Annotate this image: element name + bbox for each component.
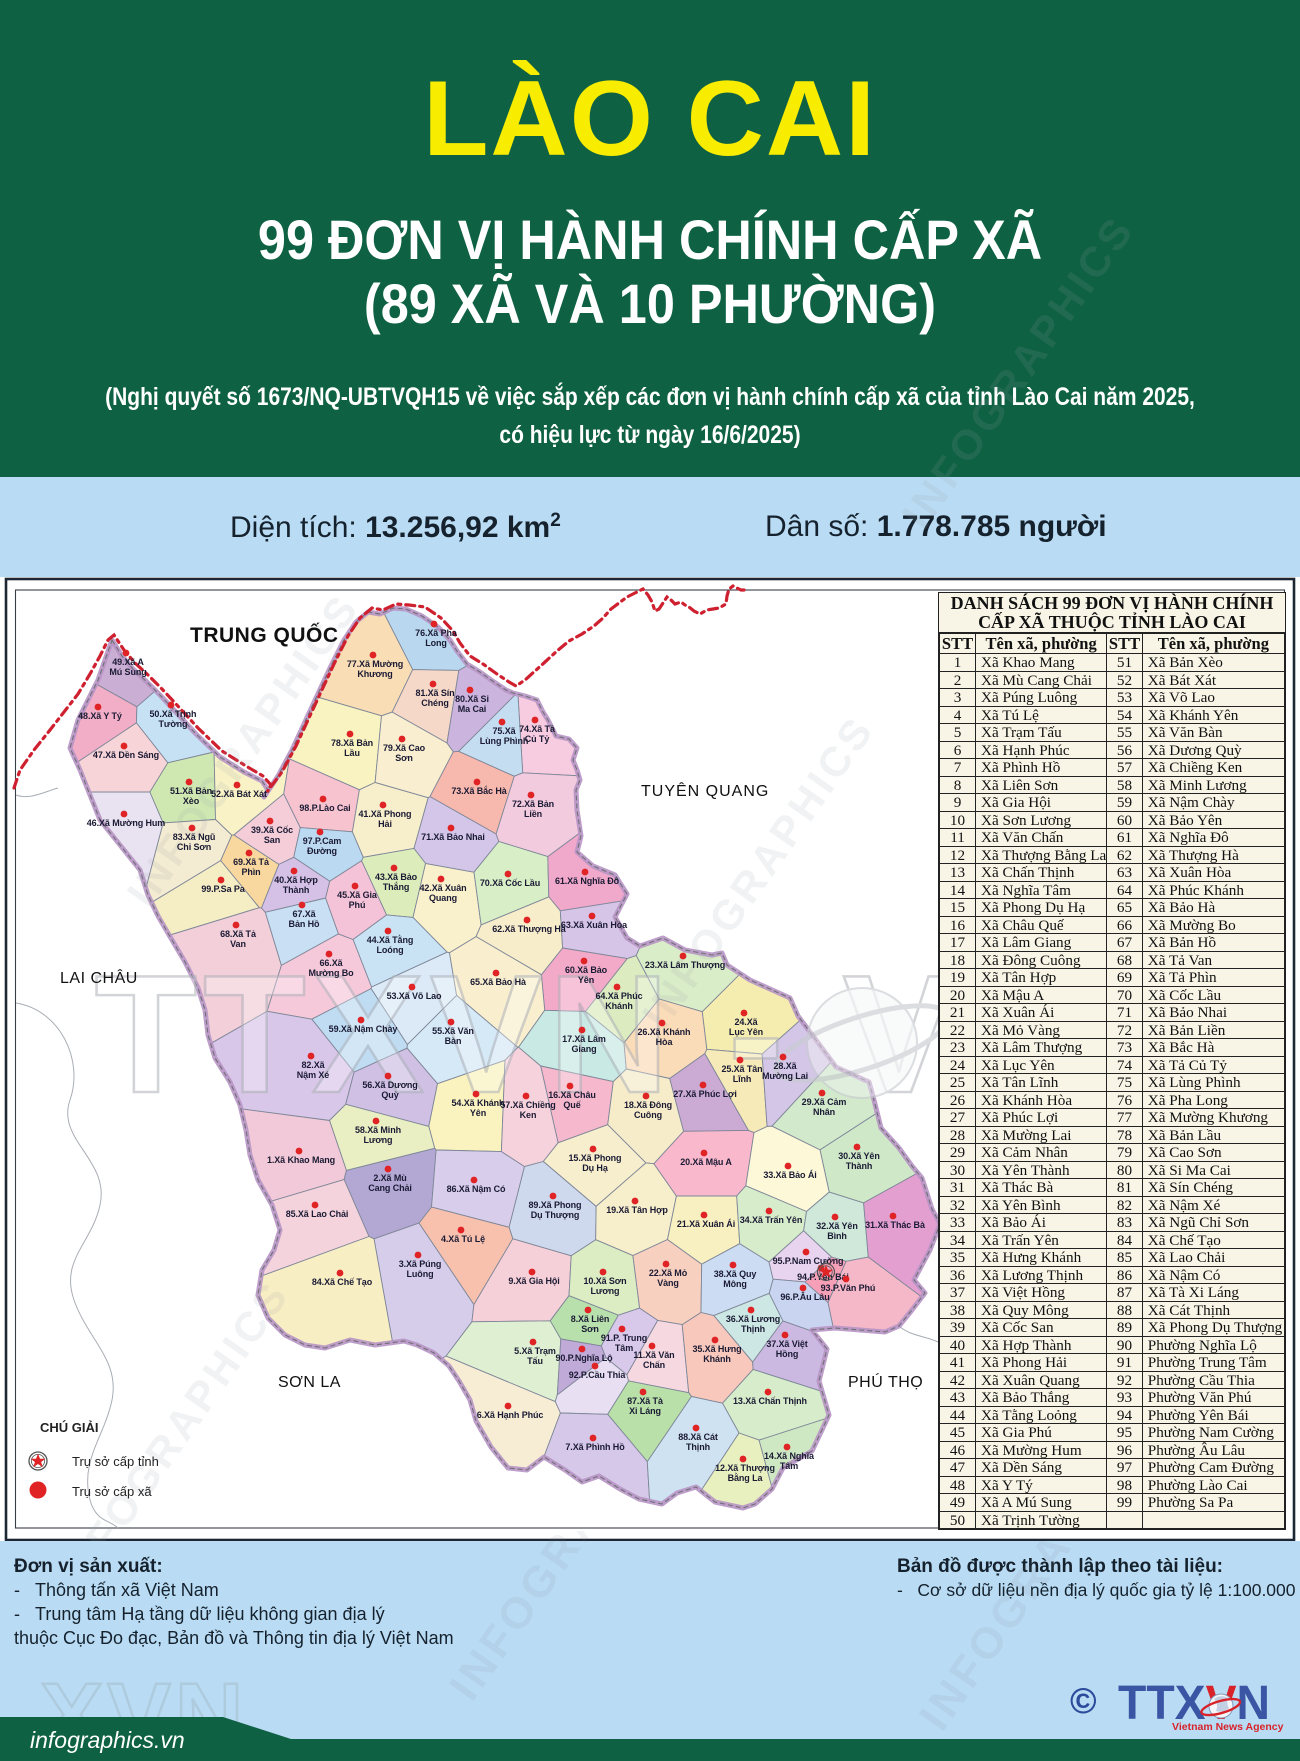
svg-text:88.Xã Cát: 88.Xã Cát <box>678 1432 718 1442</box>
svg-text:38.Xã Quy: 38.Xã Quy <box>714 1269 757 1279</box>
svg-text:Lĩnh: Lĩnh <box>733 1074 752 1084</box>
svg-text:73.Xã Bắc Hà: 73.Xã Bắc Hà <box>451 785 507 796</box>
svg-text:83.Xã Ngũ: 83.Xã Ngũ <box>173 832 216 842</box>
svg-text:Yên: Yên <box>470 1108 486 1118</box>
svg-text:24.Xã: 24.Xã <box>734 1017 758 1027</box>
svg-text:16.Xã Châu: 16.Xã Châu <box>548 1090 596 1100</box>
svg-text:Tấu: Tấu <box>527 1356 543 1366</box>
svg-text:TUYÊN QUANG: TUYÊN QUANG <box>641 781 769 800</box>
svg-text:26.Xã Khánh: 26.Xã Khánh <box>638 1027 691 1037</box>
svg-text:8.Xã Liên: 8.Xã Liên <box>571 1314 610 1324</box>
svg-text:Hồng: Hồng <box>776 1349 799 1359</box>
svg-text:Đường: Đường <box>307 846 337 856</box>
svg-text:San: San <box>264 835 280 845</box>
svg-text:TRUNG QUỐC: TRUNG QUỐC <box>190 623 339 647</box>
svg-text:50.Xã Trịnh: 50.Xã Trịnh <box>150 709 197 719</box>
svg-text:35.Xã Hưng: 35.Xã Hưng <box>692 1344 741 1354</box>
svg-text:INFOGRAPHICS: INFOGRAPHICS <box>893 207 1144 537</box>
svg-text:Xi Láng: Xi Láng <box>629 1406 661 1416</box>
svg-text:41.Xã Phong: 41.Xã Phong <box>359 809 412 819</box>
svg-text:Hòa: Hòa <box>656 1037 674 1047</box>
svg-text:65.Xã Bảo Hà: 65.Xã Bảo Hà <box>470 977 527 987</box>
svg-text:Lùng Phình: Lùng Phình <box>480 736 529 746</box>
svg-text:Tâm: Tâm <box>780 1461 798 1471</box>
svg-text:Dụ Hạ: Dụ Hạ <box>582 1163 609 1173</box>
svg-text:Khương: Khương <box>357 669 392 679</box>
svg-text:Tường: Tường <box>159 719 188 729</box>
svg-text:Nhân: Nhân <box>813 1107 835 1117</box>
svg-text:90.P.Nghĩa Lộ: 90.P.Nghĩa Lộ <box>555 1353 613 1363</box>
svg-text:Vietnam News Agency: Vietnam News Agency <box>1172 1721 1284 1733</box>
svg-text:Sơn: Sơn <box>581 1324 599 1334</box>
svg-text:Củ Tỷ: Củ Tỷ <box>525 734 550 744</box>
svg-text:63.Xã Xuân Hòa: 63.Xã Xuân Hòa <box>561 920 628 930</box>
svg-text:Liền: Liền <box>524 809 542 819</box>
svg-text:Phìn: Phìn <box>241 867 260 877</box>
svg-text:Ken: Ken <box>520 1110 537 1120</box>
svg-text:68.Xã Tả: 68.Xã Tả <box>220 929 257 939</box>
svg-text:43.Xã Bảo: 43.Xã Bảo <box>375 872 418 882</box>
svg-text:Xèo: Xèo <box>183 796 200 806</box>
svg-text:80.Xã Si: 80.Xã Si <box>455 694 489 704</box>
svg-text:57.Xã Chiềng: 57.Xã Chiềng <box>500 1100 555 1110</box>
svg-text:79.Xã Cao: 79.Xã Cao <box>383 743 426 753</box>
svg-text:18.Xã Đông: 18.Xã Đông <box>624 1100 672 1110</box>
svg-text:Thành: Thành <box>846 1161 873 1171</box>
svg-text:Loóng: Loóng <box>377 945 404 955</box>
svg-text:96.P.Âu Lâu: 96.P.Âu Lâu <box>780 1291 829 1302</box>
svg-text:37.Xã Việt: 37.Xã Việt <box>766 1339 807 1349</box>
svg-text:©: © <box>1070 1680 1097 1721</box>
svg-text:67.Xã: 67.Xã <box>292 909 316 919</box>
svg-text:54.Xã Khánh: 54.Xã Khánh <box>452 1098 505 1108</box>
svg-text:33.Xã Bảo Ái: 33.Xã Bảo Ái <box>763 1170 816 1180</box>
svg-text:39.Xã Cốc: 39.Xã Cốc <box>251 825 293 835</box>
svg-text:56.Xã Dương: 56.Xã Dương <box>362 1080 417 1090</box>
svg-text:42.Xã Xuân: 42.Xã Xuân <box>419 883 466 893</box>
svg-text:SƠN LA: SƠN LA <box>278 1374 341 1391</box>
svg-text:44.Xã Tằng: 44.Xã Tằng <box>367 934 414 945</box>
svg-text:Nậm Xé: Nậm Xé <box>297 1070 330 1080</box>
svg-text:17.Xã Lâm: 17.Xã Lâm <box>562 1034 606 1044</box>
svg-text:Bàn: Bàn <box>445 1036 462 1046</box>
svg-text:Quế: Quế <box>563 1100 581 1110</box>
svg-text:PHÚ THỌ: PHÚ THỌ <box>848 1372 923 1391</box>
svg-text:7.Xã Phình Hồ: 7.Xã Phình Hồ <box>565 1442 625 1452</box>
svg-text:49.Xã A: 49.Xã A <box>112 657 144 667</box>
svg-text:21.Xã Xuân Ái: 21.Xã Xuân Ái <box>677 1219 735 1229</box>
svg-text:Lầu: Lầu <box>344 748 360 758</box>
svg-text:98.P.Lào Cai: 98.P.Lào Cai <box>299 803 350 813</box>
svg-text:Vàng: Vàng <box>657 1278 679 1288</box>
svg-text:74.Xã Tả: 74.Xã Tả <box>519 724 556 734</box>
svg-text:46.Xã Mường Hum: 46.Xã Mường Hum <box>87 818 166 828</box>
svg-text:61.Xã Nghĩa Đô: 61.Xã Nghĩa Đô <box>555 876 620 886</box>
svg-text:85.Xã Lao Chải: 85.Xã Lao Chải <box>286 1209 349 1219</box>
svg-text:59.Xã Nậm Chày: 59.Xã Nậm Chày <box>329 1024 398 1034</box>
svg-text:36.Xã Lương: 36.Xã Lương <box>726 1314 780 1324</box>
svg-text:91.P. Trung: 91.P. Trung <box>601 1333 647 1343</box>
svg-text:5.Xã Trạm: 5.Xã Trạm <box>514 1346 556 1356</box>
svg-text:Tâm: Tâm <box>615 1343 633 1353</box>
svg-text:30.Xã Yên: 30.Xã Yên <box>838 1151 879 1161</box>
svg-text:77.Xã Mường: 77.Xã Mường <box>347 659 403 669</box>
svg-text:LAI CHÂU: LAI CHÂU <box>60 968 138 987</box>
svg-text:Cang Chải: Cang Chải <box>368 1183 412 1193</box>
svg-text:32.Xã Yên: 32.Xã Yên <box>816 1221 857 1231</box>
svg-text:45.Xã Gia: 45.Xã Gia <box>337 890 378 900</box>
svg-text:Chấn: Chấn <box>643 1360 665 1370</box>
svg-text:55.Xã Văn: 55.Xã Văn <box>432 1026 474 1036</box>
svg-text:Lương: Lương <box>364 1135 393 1145</box>
svg-text:Bản Hồ: Bản Hồ <box>289 919 321 929</box>
svg-text:Long: Long <box>425 638 447 648</box>
svg-text:66.Xã: 66.Xã <box>319 958 343 968</box>
svg-text:64.Xã Phúc: 64.Xã Phúc <box>595 991 642 1001</box>
svg-text:Thịnh: Thịnh <box>686 1442 710 1452</box>
svg-text:Chéng: Chéng <box>421 698 449 708</box>
svg-text:95.P.Nam Cường: 95.P.Nam Cường <box>773 1256 844 1266</box>
svg-text:48.Xã Y Tý: 48.Xã Y Tý <box>78 711 122 721</box>
svg-text:1.Xã Khao Mang: 1.Xã Khao Mang <box>267 1155 335 1165</box>
svg-text:Trụ sở cấp tỉnh: Trụ sở cấp tỉnh <box>72 1454 159 1469</box>
svg-text:89.Xã Phong: 89.Xã Phong <box>529 1200 582 1210</box>
svg-text:Mường Lai: Mường Lai <box>762 1071 808 1081</box>
svg-text:71.Xã Bảo Nhai: 71.Xã Bảo Nhai <box>421 832 485 842</box>
svg-text:Hải: Hải <box>378 819 392 829</box>
svg-text:Bằng La: Bằng La <box>728 1472 764 1483</box>
svg-text:6.Xã Hạnh Phúc: 6.Xã Hạnh Phúc <box>477 1410 544 1420</box>
svg-text:Thịnh: Thịnh <box>741 1324 765 1334</box>
svg-text:Khánh: Khánh <box>703 1354 731 1364</box>
svg-text:Lục Yên: Lục Yên <box>729 1027 763 1037</box>
svg-text:12.Xã Thượng: 12.Xã Thượng <box>715 1463 775 1473</box>
svg-text:84.Xã Chế Tạo: 84.Xã Chế Tạo <box>312 1277 373 1287</box>
svg-text:53.Xã Võ Lao: 53.Xã Võ Lao <box>387 991 442 1001</box>
svg-text:Mú Sung: Mú Sung <box>109 667 146 677</box>
svg-text:Bình: Bình <box>827 1231 847 1241</box>
svg-text:9.Xã Gia Hội: 9.Xã Gia Hội <box>508 1276 559 1286</box>
svg-text:25.Xã Tân: 25.Xã Tân <box>721 1064 762 1074</box>
svg-text:Khánh: Khánh <box>605 1001 633 1011</box>
svg-text:CHÚ GIẢI: CHÚ GIẢI <box>40 1420 99 1435</box>
svg-text:Quang: Quang <box>429 893 457 903</box>
svg-text:51.Xã Bản: 51.Xã Bản <box>170 786 212 796</box>
svg-text:58.Xã Minh: 58.Xã Minh <box>355 1125 401 1135</box>
svg-text:Lương: Lương <box>591 1286 620 1296</box>
svg-text:20.Xã Mậu A: 20.Xã Mậu A <box>680 1157 732 1167</box>
svg-text:40.Xã Hợp: 40.Xã Hợp <box>274 875 318 885</box>
svg-text:4.Xã Tú Lệ: 4.Xã Tú Lệ <box>441 1234 485 1244</box>
svg-text:13.Xã Chấn Thịnh: 13.Xã Chấn Thịnh <box>733 1396 807 1406</box>
svg-text:15.Xã Phong: 15.Xã Phong <box>569 1153 622 1163</box>
svg-text:78.Xã Bản: 78.Xã Bản <box>331 738 373 748</box>
svg-text:Dụ Thượng: Dụ Thượng <box>531 1210 580 1220</box>
svg-text:92.P.Cầu Thia: 92.P.Cầu Thia <box>569 1370 627 1380</box>
svg-text:81.Xã Sín: 81.Xã Sín <box>415 688 454 698</box>
svg-text:Trụ sở cấp xã: Trụ sở cấp xã <box>72 1484 152 1499</box>
svg-text:34.Xã Trấn Yên: 34.Xã Trấn Yên <box>740 1215 802 1225</box>
svg-text:2.Xã Mù: 2.Xã Mù <box>373 1173 406 1183</box>
svg-text:Sơn: Sơn <box>395 753 413 763</box>
svg-text:11.Xã Văn: 11.Xã Văn <box>633 1350 674 1360</box>
svg-text:87.Xã Tà: 87.Xã Tà <box>627 1396 664 1406</box>
svg-text:47.Xã Dền Sáng: 47.Xã Dền Sáng <box>93 750 159 760</box>
svg-text:Van: Van <box>230 939 246 949</box>
svg-text:22.Xã Mỏ: 22.Xã Mỏ <box>649 1268 688 1278</box>
svg-text:27.Xã Phúc Lợi: 27.Xã Phúc Lợi <box>673 1089 737 1099</box>
svg-text:23.Xã Lâm Thượng: 23.Xã Lâm Thượng <box>645 960 725 970</box>
svg-text:86.Xã Nậm Có: 86.Xã Nậm Có <box>447 1184 506 1194</box>
svg-text:Mông: Mông <box>723 1279 747 1289</box>
svg-text:99.P.Sa Pa: 99.P.Sa Pa <box>201 884 245 894</box>
svg-text:Cuông: Cuông <box>634 1110 662 1120</box>
svg-text:Luông: Luông <box>407 1269 434 1279</box>
svg-text:14.Xã Nghĩa: 14.Xã Nghĩa <box>764 1451 815 1461</box>
svg-text:52.Xã Bát Xát: 52.Xã Bát Xát <box>211 789 267 799</box>
svg-text:Thành: Thành <box>283 885 310 895</box>
svg-text:75.Xã: 75.Xã <box>492 726 516 736</box>
svg-text:Ma Cai: Ma Cai <box>458 704 486 714</box>
svg-text:19.Xã Tân Hợp: 19.Xã Tân Hợp <box>606 1205 668 1215</box>
svg-text:Phú: Phú <box>349 900 366 910</box>
svg-text:Chỉ Sơn: Chỉ Sơn <box>177 842 211 852</box>
svg-text:69.Xã Tả: 69.Xã Tả <box>233 857 270 867</box>
svg-text:97.P.Cam: 97.P.Cam <box>303 836 342 846</box>
svg-text:Thắng: Thắng <box>383 881 410 892</box>
svg-text:28.Xã: 28.Xã <box>773 1061 797 1071</box>
svg-text:76.Xã Pha: 76.Xã Pha <box>415 628 458 638</box>
svg-text:Giang: Giang <box>571 1044 596 1054</box>
svg-text:Yên: Yên <box>578 975 594 985</box>
svg-text:Mường Bo: Mường Bo <box>308 968 354 978</box>
svg-text:10.Xã Sơn: 10.Xã Sơn <box>583 1276 626 1286</box>
svg-text:70.Xã Cốc Lầu: 70.Xã Cốc Lầu <box>480 878 540 888</box>
svg-text:3.Xã Púng: 3.Xã Púng <box>399 1259 442 1269</box>
svg-text:82.Xã: 82.Xã <box>301 1060 325 1070</box>
svg-text:62.Xã Thượng Hà: 62.Xã Thượng Hà <box>492 924 567 934</box>
svg-text:29.Xã Cảm: 29.Xã Cảm <box>802 1097 847 1107</box>
svg-text:Quỳ: Quỳ <box>381 1090 398 1100</box>
svg-text:72.Xã Bản: 72.Xã Bản <box>512 799 554 809</box>
svg-text:31.Xã Thác Bà: 31.Xã Thác Bà <box>865 1220 926 1230</box>
svg-text:60.Xã Bảo: 60.Xã Bảo <box>565 965 608 975</box>
